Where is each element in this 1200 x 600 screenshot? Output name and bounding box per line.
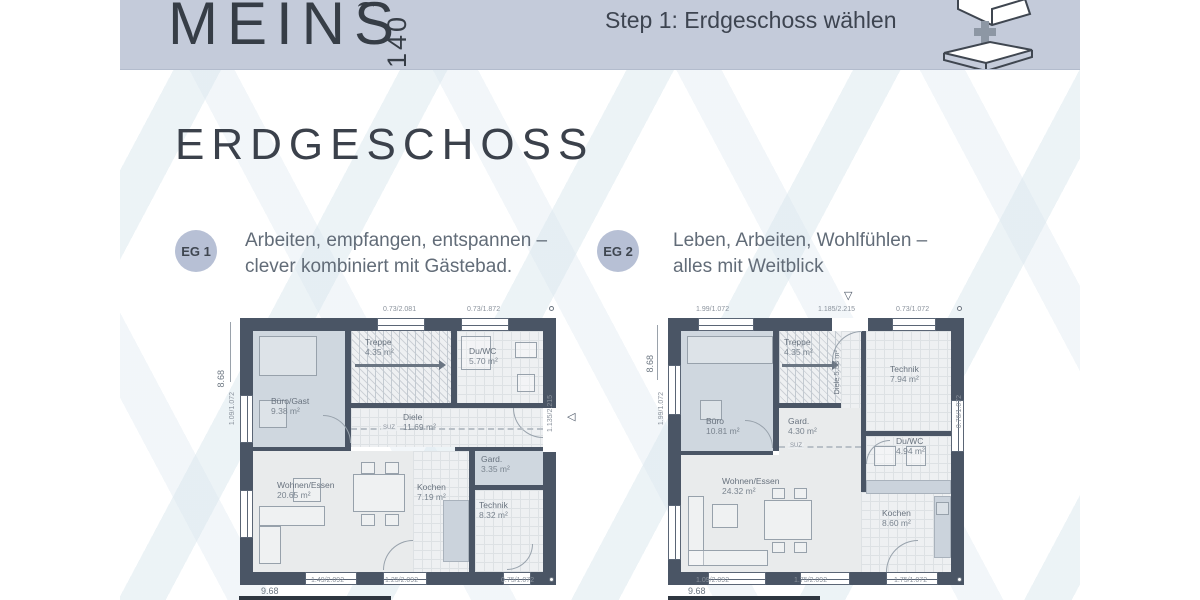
room-label-buero: Büro/Gast9.38 m² (271, 396, 309, 416)
coffee-table-icon (712, 504, 738, 528)
eg1-description-line1: Arbeiten, empfangen, entspannen – (245, 228, 547, 254)
dim-label: 1.75/2.092 (794, 577, 827, 584)
dim-line (230, 322, 231, 382)
scale-bar (239, 596, 391, 600)
dim-label: 1.09/2.092 (696, 577, 729, 584)
room-label-treppe: Treppe4.35 m² (365, 337, 394, 357)
dim-total-width: 9.68 (261, 586, 279, 596)
survey-point-icon (957, 577, 962, 582)
entry-arrow-icon: ▽ (844, 289, 852, 302)
survey-point-icon (549, 306, 554, 311)
dim-label: 1.99/1.072 (696, 306, 729, 313)
window (892, 318, 936, 331)
window (698, 318, 754, 331)
wc-icon (517, 374, 535, 392)
room-label-gard: Gard.3.35 m² (481, 454, 510, 474)
eg2-badge[interactable]: EG 2 (597, 230, 639, 272)
header: MEINS 140 Step 1: Erdgeschoss wählen (120, 0, 1080, 70)
dim-label: 1.49/2.092 (311, 577, 344, 584)
sink-icon (874, 446, 896, 466)
sink-icon (515, 342, 537, 358)
interior-wall (475, 485, 543, 490)
beam-label: SUZ (788, 443, 804, 449)
interior-wall (681, 451, 773, 455)
interior-wall (779, 403, 841, 408)
room-label-kochen: Kochen7.19 m² (417, 482, 446, 502)
room-label-diele: Diele11.69 m² (403, 412, 436, 432)
dim-label: 1.135/2.215 (547, 395, 554, 432)
room-label-technik: Technik8.32 m² (479, 500, 508, 520)
interior-wall (253, 447, 345, 451)
window (668, 365, 681, 415)
window (240, 395, 253, 443)
eg1-description-line2: clever kombiniert mit Gästebad. (245, 254, 547, 280)
dim-label: 0.76/1.072 (956, 395, 963, 428)
beam-label: SUZ (381, 425, 397, 431)
chair-icon (385, 514, 399, 526)
sofa-icon (259, 526, 281, 564)
eg2-description-line1: Leben, Arbeiten, Wohlfühlen – (673, 228, 927, 254)
chair-icon (794, 488, 807, 499)
window (240, 490, 253, 538)
entry-door-gap (832, 318, 868, 331)
dim-line (657, 325, 658, 380)
appliance-icon (936, 502, 949, 515)
room-label-treppe: Treppe4.35 m² (784, 337, 813, 357)
dim-total-height: 8.68 (645, 355, 655, 373)
desk-icon (687, 336, 773, 364)
window (461, 318, 509, 331)
interior-wall (773, 331, 779, 451)
interior-wall (451, 331, 457, 403)
interior-wall (469, 451, 475, 572)
dim-total-width: 9.68 (688, 586, 706, 596)
dim-label: 1.75/1.072 (894, 577, 927, 584)
eg1-badge[interactable]: EG 1 (175, 230, 217, 272)
chair-icon (772, 542, 785, 553)
room-label-wohnen: Wohnen/Essen20.65 m² (277, 480, 335, 500)
dim-label: 0.73/2.081 (383, 306, 416, 313)
scale-bar (668, 596, 820, 600)
sofa-icon (259, 506, 325, 526)
dim-label: 1.25/2.092 (385, 577, 418, 584)
brand-logo-number: 140 (382, 0, 413, 68)
bed-icon (259, 336, 317, 376)
page: MEINS 140 Step 1: Erdgeschoss wählen ERD… (0, 0, 1200, 600)
room-label-duwc: Du/WC5.70 m² (469, 346, 498, 366)
step-title: Step 1: Erdgeschoss wählen (605, 7, 915, 34)
chair-icon (361, 462, 375, 474)
sofa-icon (688, 550, 768, 566)
chair-icon (361, 514, 375, 526)
dining-table-icon (353, 474, 405, 512)
room-label-kochen: Kochen8.60 m² (882, 508, 911, 528)
kitchen-counter (866, 480, 951, 494)
content-area: MEINS 140 Step 1: Erdgeschoss wählen ERD… (120, 0, 1080, 600)
survey-point-icon (549, 577, 554, 582)
dim-label: 0.75/1.072 (501, 577, 534, 584)
interior-wall (351, 403, 457, 408)
dining-table-icon (764, 500, 812, 540)
dim-label: 1.09/1.072 (229, 392, 236, 425)
room-label-gard: Gard.4.30 m² (788, 416, 817, 436)
window (668, 505, 681, 560)
eg2-description-line2: alles mit Weitblick (673, 254, 927, 280)
dim-label: 0.73/1.872 (467, 306, 500, 313)
room-label-wohnen: Wohnen/Essen24.32 m² (722, 476, 780, 496)
floorplan-eg1[interactable]: SUZ Büro/Gast9.38 m² Treppe4.35 m² Du/WC… (215, 300, 585, 600)
page-title: ERDGESCHOSS (175, 120, 594, 170)
entry-arrow-icon: ◁ (567, 410, 575, 423)
dim-label: 0.73/1.072 (896, 306, 929, 313)
dim-label: 1.99/1.072 (658, 392, 665, 425)
room-label-diele: Diele 5.53 m² (832, 350, 842, 395)
window (377, 318, 425, 331)
kitchen-counter (443, 500, 469, 562)
steel-beam-line (351, 428, 543, 430)
room-label-duwc: Du/WC4.94 m² (896, 436, 925, 456)
floorplan-eg2[interactable]: SUZ Büro10.81 m² Treppe4.35 m² Diele 5.5… (660, 300, 1030, 600)
add-floor-icon (932, 0, 1042, 70)
survey-point-icon (957, 306, 962, 311)
room-label-buero: Büro10.81 m² (706, 416, 740, 436)
eg1-description: Arbeiten, empfangen, entspannen – clever… (245, 228, 547, 280)
dim-label: 1.185/2.215 (818, 306, 855, 313)
room-label-technik: Technik7.94 m² (890, 364, 919, 384)
eg2-description: Leben, Arbeiten, Wohlfühlen – alles mit … (673, 228, 927, 280)
chair-icon (794, 542, 807, 553)
logo-swoosh-icon (358, 2, 374, 12)
dim-total-height: 8.68 (216, 370, 226, 388)
chair-icon (385, 462, 399, 474)
